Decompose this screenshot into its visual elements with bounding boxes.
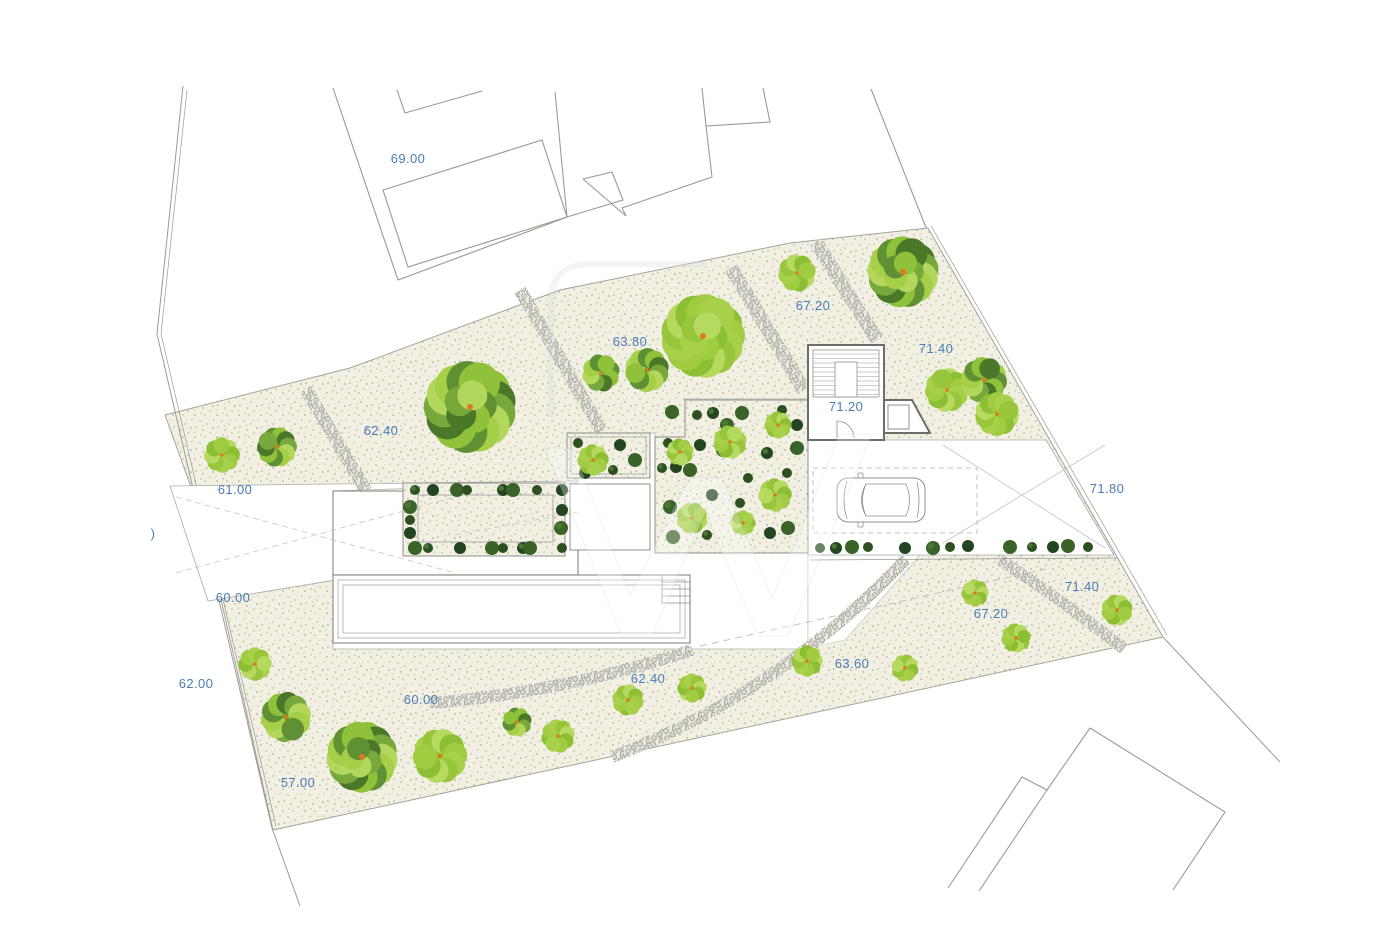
bush-icon bbox=[573, 438, 583, 448]
bush-icon bbox=[735, 498, 745, 508]
neighbor-building-bottomright-b bbox=[948, 728, 1090, 888]
elevation-label: 71.40 bbox=[1065, 579, 1100, 594]
elevation-label: 63.80 bbox=[613, 334, 648, 349]
tree-icon bbox=[791, 645, 822, 676]
bush-icon bbox=[408, 541, 422, 555]
tree-icon bbox=[764, 411, 791, 438]
tree-icon bbox=[238, 647, 272, 681]
bush-icon bbox=[781, 521, 795, 535]
boundary-upper-right bbox=[871, 89, 927, 230]
bush-icon bbox=[554, 521, 568, 535]
bush-icon bbox=[735, 406, 749, 420]
bush-icon bbox=[782, 468, 792, 478]
elevation-label: 57.00 bbox=[281, 775, 316, 790]
bush-icon bbox=[614, 439, 626, 451]
bush-icon bbox=[707, 407, 719, 419]
bush-icon bbox=[608, 465, 618, 475]
tree-icon bbox=[577, 444, 608, 475]
bush-icon bbox=[962, 540, 974, 552]
elevation-label: 60.00 bbox=[216, 590, 251, 605]
bush-icon bbox=[1047, 541, 1059, 553]
site-plan: 69.0063.8067.2071.4062.4071.2061.00)71.8… bbox=[0, 0, 1400, 933]
elevation-label: 71.40 bbox=[919, 341, 954, 356]
bush-icon bbox=[1003, 540, 1017, 554]
bush-icon bbox=[790, 441, 804, 455]
bush-icon bbox=[657, 463, 667, 473]
bush-icon bbox=[692, 410, 702, 420]
elevation-label: 60.00 bbox=[404, 692, 439, 707]
elevation-label: 71.20 bbox=[829, 399, 864, 414]
bush-icon bbox=[427, 484, 439, 496]
tree-icon bbox=[677, 673, 706, 702]
bush-icon bbox=[454, 542, 466, 554]
elevation-label: 67.20 bbox=[796, 298, 831, 313]
bush-icon bbox=[683, 463, 697, 477]
site-plan-svg: 69.0063.8067.2071.4062.4071.2061.00)71.8… bbox=[0, 0, 1400, 933]
elevation-label: 67.20 bbox=[974, 606, 1009, 621]
bush-icon bbox=[450, 483, 464, 497]
stair-void bbox=[835, 362, 857, 397]
neighbor-notch-top bbox=[397, 90, 482, 113]
tree-icon bbox=[257, 427, 297, 466]
bush-icon bbox=[485, 541, 499, 555]
elevation-label: 63.60 bbox=[835, 656, 870, 671]
bush-icon bbox=[926, 541, 940, 555]
bush-icon bbox=[523, 541, 537, 555]
bush-icon bbox=[665, 405, 679, 419]
bush-icon bbox=[404, 527, 416, 539]
bush-icon bbox=[702, 530, 712, 540]
bush-icon bbox=[863, 542, 873, 552]
bush-icon bbox=[462, 485, 472, 495]
tree-icon bbox=[961, 579, 988, 606]
bush-icon bbox=[791, 419, 803, 431]
bush-icon bbox=[694, 439, 706, 451]
bush-icon bbox=[403, 500, 417, 514]
bush-icon bbox=[410, 485, 420, 495]
bush-icon bbox=[1083, 542, 1093, 552]
bush-icon bbox=[845, 540, 859, 554]
neighbor-topcenter-b bbox=[583, 126, 712, 216]
bush-icon bbox=[628, 453, 642, 467]
elevation-label: 62.00 bbox=[179, 676, 214, 691]
bush-icon bbox=[945, 542, 955, 552]
elevation-label: 62.40 bbox=[364, 423, 399, 438]
bush-icon bbox=[764, 527, 776, 539]
bush-icon bbox=[761, 447, 773, 459]
bush-icon bbox=[557, 543, 567, 553]
bush-icon bbox=[556, 504, 568, 516]
bush-icon bbox=[498, 543, 508, 553]
bush-icon bbox=[743, 473, 753, 483]
elevation-label: 71.80 bbox=[1090, 481, 1125, 496]
bush-icon bbox=[532, 485, 542, 495]
tree-icon bbox=[975, 392, 1018, 436]
bush-icon bbox=[423, 543, 433, 553]
boundary-continuation bbox=[1163, 637, 1280, 762]
bush-icon bbox=[1027, 542, 1037, 552]
bush-icon bbox=[830, 542, 842, 554]
neighbor-topcenter-a bbox=[702, 88, 770, 126]
annex-inner bbox=[888, 405, 909, 429]
bush-icon bbox=[405, 515, 415, 525]
tree-icon bbox=[204, 437, 240, 473]
neighbor-building-bottomright-a bbox=[1090, 728, 1225, 890]
neighbor-plot-topleft bbox=[333, 88, 567, 280]
neighbor-step-right bbox=[567, 172, 623, 217]
tree-icon bbox=[758, 478, 792, 512]
neighbor-building-bottomright-c bbox=[979, 790, 1047, 891]
bush-icon bbox=[506, 483, 520, 497]
bush-icon bbox=[1061, 539, 1075, 553]
elevation-label: 62.40 bbox=[631, 671, 666, 686]
elevation-label: 61.00 bbox=[218, 482, 253, 497]
elevation-label: 69.00 bbox=[391, 151, 426, 166]
partial-elevation-label: ) bbox=[151, 526, 156, 541]
bush-icon bbox=[899, 542, 911, 554]
